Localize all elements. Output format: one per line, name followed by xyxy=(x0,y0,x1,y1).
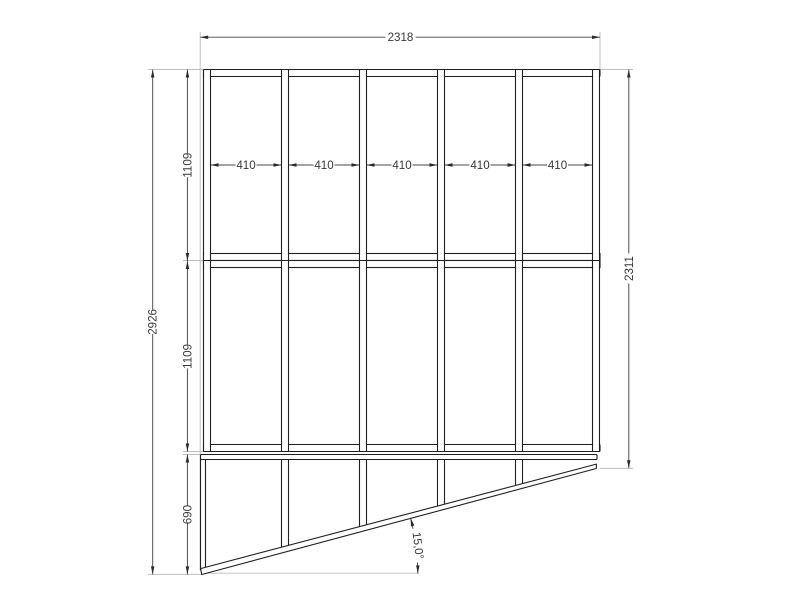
svg-text:690: 690 xyxy=(181,505,194,524)
svg-text:410: 410 xyxy=(314,159,333,172)
svg-text:2311: 2311 xyxy=(623,256,636,281)
svg-text:1109: 1109 xyxy=(181,153,194,178)
svg-text:2926: 2926 xyxy=(147,309,160,335)
svg-text:410: 410 xyxy=(470,159,489,172)
svg-text:410: 410 xyxy=(236,159,255,172)
svg-text:2318: 2318 xyxy=(388,31,414,44)
svg-text:410: 410 xyxy=(548,159,567,172)
svg-text:410: 410 xyxy=(392,159,411,172)
svg-text:1109: 1109 xyxy=(181,344,194,369)
